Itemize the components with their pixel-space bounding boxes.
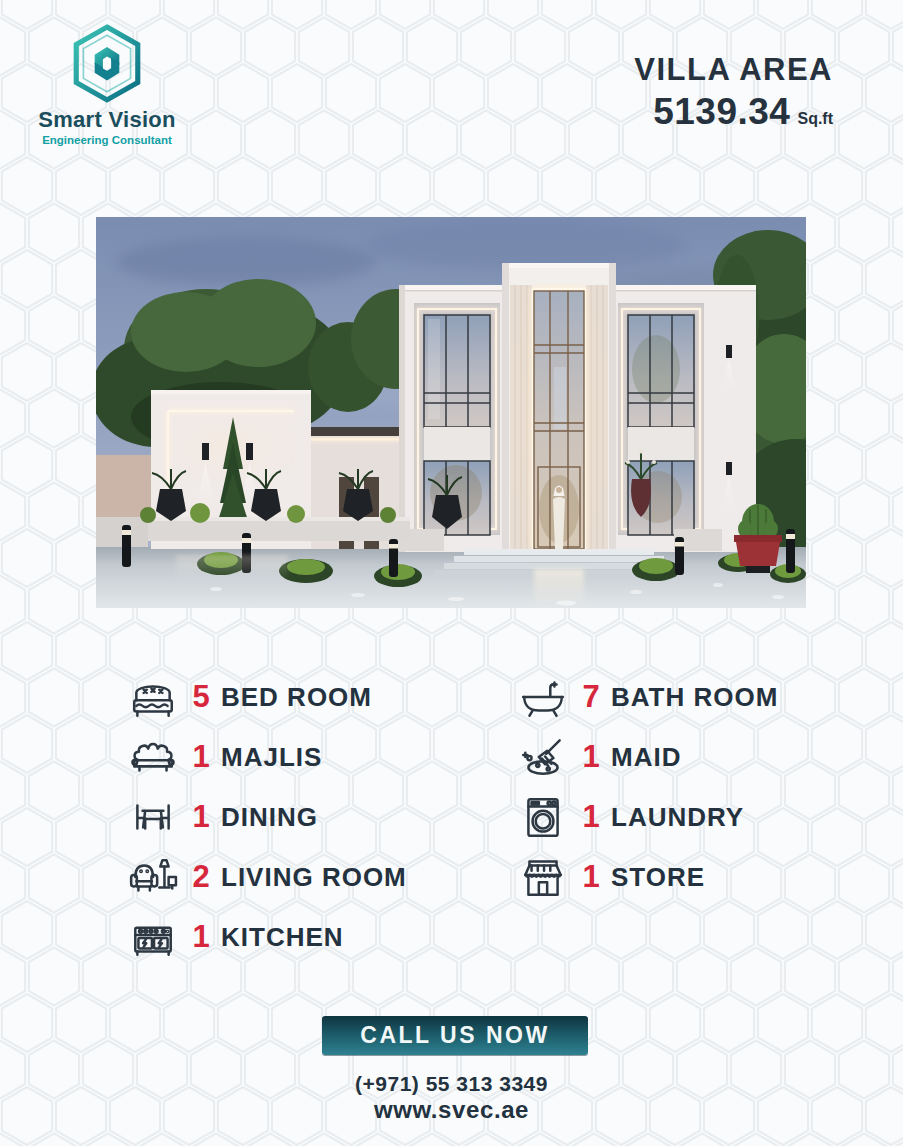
- feature-bath-room: 7 BATH ROOM: [514, 667, 778, 727]
- feature-store: 1 STORE: [514, 847, 778, 907]
- feature-count: 7: [580, 679, 602, 715]
- villa-area-block: VILLA AREA 5139.34 Sq.ft: [634, 52, 833, 133]
- feature-count: 2: [190, 859, 212, 895]
- features-left-column: 5 BED ROOM 1 MAJLIS 1 DINING 2 LIVING RO…: [124, 667, 407, 967]
- feature-kitchen: 1 KITCHEN: [124, 907, 407, 967]
- store-icon: [514, 850, 572, 904]
- feature-maid: 1 MAID: [514, 727, 778, 787]
- feature-count: 1: [580, 799, 602, 835]
- feature-count: 1: [190, 799, 212, 835]
- hexagon-s-icon: [71, 24, 143, 104]
- brand-name: Smart Vision: [28, 107, 186, 133]
- phone-number[interactable]: (+971) 55 313 3349: [0, 1072, 903, 1096]
- stove-icon: [124, 910, 182, 964]
- villa-area-unit: Sq.ft: [797, 110, 833, 128]
- villa-area-value: 5139.34: [653, 91, 790, 133]
- website-link[interactable]: www.svec.ae: [0, 1096, 903, 1124]
- feature-majlis: 1 MAJLIS: [124, 727, 407, 787]
- feature-count: 1: [190, 739, 212, 775]
- villa-flyer: Smart Vision Engineering Consultant VILL…: [0, 0, 903, 1146]
- feature-label: BED ROOM: [221, 682, 372, 713]
- feature-label: LAUNDRY: [611, 802, 744, 833]
- call-us-now-button[interactable]: CALL US NOW: [322, 1016, 588, 1055]
- feature-label: MAID: [611, 742, 681, 773]
- feature-count: 1: [580, 739, 602, 775]
- villa-area-label: VILLA AREA: [634, 52, 833, 88]
- feature-count: 5: [190, 679, 212, 715]
- brand-block: Smart Vision Engineering Consultant: [28, 24, 186, 146]
- feature-label: KITCHEN: [221, 922, 344, 953]
- feature-bed-room: 5 BED ROOM: [124, 667, 407, 727]
- feature-label: MAJLIS: [221, 742, 322, 773]
- feature-dining: 1 DINING: [124, 787, 407, 847]
- feature-count: 1: [190, 919, 212, 955]
- feature-count: 1: [580, 859, 602, 895]
- bathtub-icon: [514, 670, 572, 724]
- armchair-icon: [124, 850, 182, 904]
- washing-machine-icon: [514, 790, 572, 844]
- feature-laundry: 1 LAUNDRY: [514, 787, 778, 847]
- feature-label: BATH ROOM: [611, 682, 778, 713]
- feature-living-room: 2 LIVING ROOM: [124, 847, 407, 907]
- brand-tagline: Engineering Consultant: [28, 134, 186, 146]
- sofa-icon: [124, 730, 182, 784]
- feature-label: STORE: [611, 862, 705, 893]
- villa-photo: [96, 217, 806, 608]
- cleaning-brush-icon: [514, 730, 572, 784]
- features-right-column: 7 BATH ROOM 1 MAID 1 LAUNDRY 1 STORE: [514, 667, 778, 907]
- feature-label: LIVING ROOM: [221, 862, 407, 893]
- feature-label: DINING: [221, 802, 318, 833]
- bed-icon: [124, 670, 182, 724]
- dining-table-icon: [124, 790, 182, 844]
